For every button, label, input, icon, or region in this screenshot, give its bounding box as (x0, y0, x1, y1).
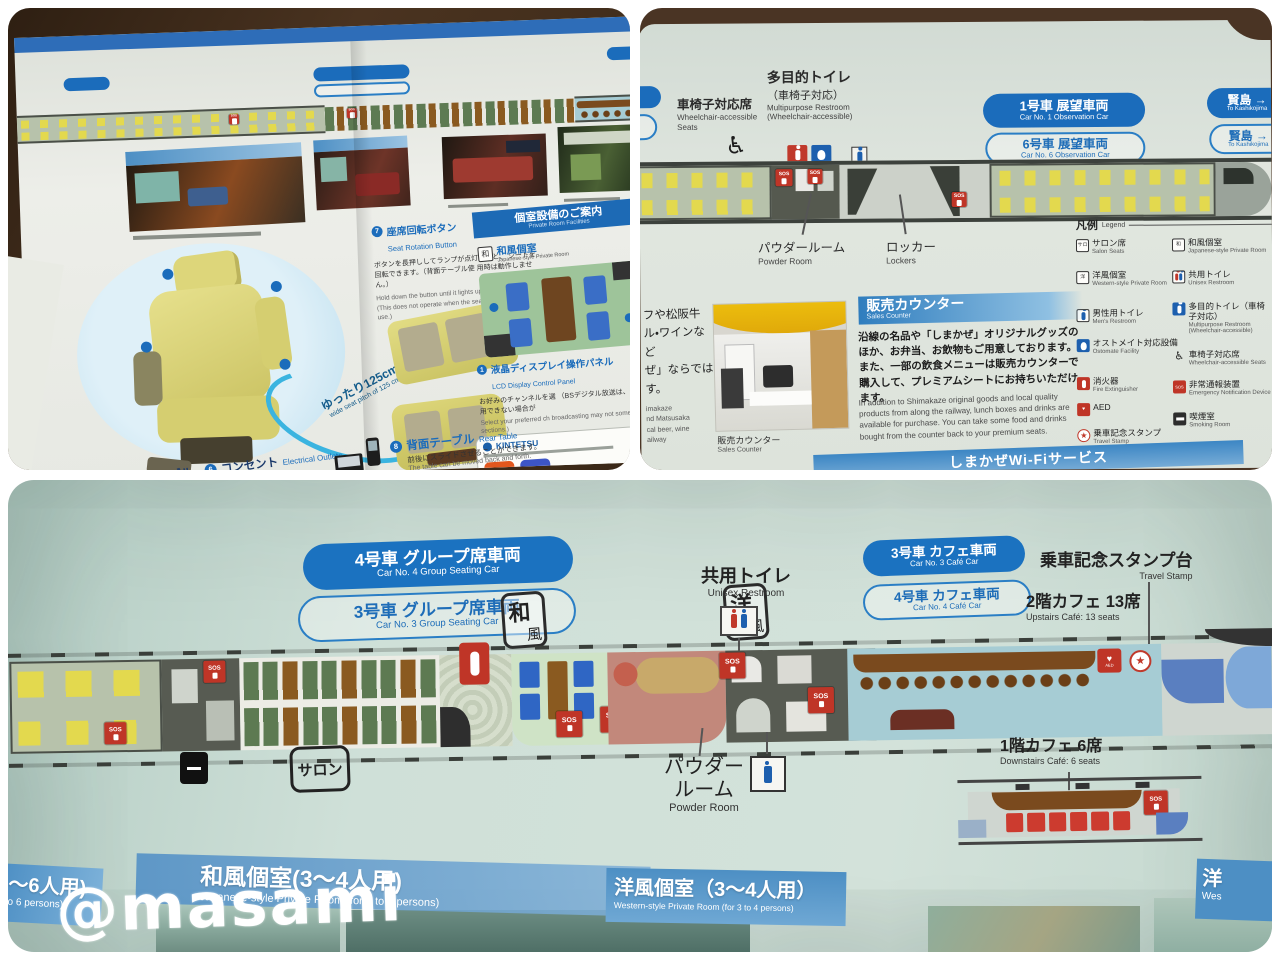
banner-right-partial: 洋 Wes (1195, 859, 1272, 922)
phone-icon (365, 437, 380, 466)
multipurpose-restroom-label: 多目的トイレ （車椅子対応） Multipurpose Restroom (Wh… (767, 67, 853, 122)
downstairs-cafe-label: 1階カフェ 6席 Downstairs Café: 6 seats (1000, 732, 1102, 766)
mini-pill-1 (63, 77, 109, 92)
rear-table-en: Rear Table (478, 431, 517, 444)
salon-label-box: サロン (289, 745, 351, 793)
japanese-room-icon: 和 (1172, 238, 1185, 251)
body-line: broadcasting may not (551, 410, 613, 421)
legend-item-wheelchair-seats: ♿ 車椅子対応席Wheelchair-accessible Seats (1173, 350, 1266, 367)
car4-cafe-pill: 4号車 カフェ車両 Car No. 4 Café Car (862, 579, 1031, 621)
legend-item-western-room: 洋 洋風個室Western-style Private Room (1076, 271, 1167, 288)
bottom-photo-3 (928, 906, 1140, 952)
multipurpose-restroom-icon (1172, 302, 1185, 315)
mini-pill-4 (607, 46, 630, 61)
car3-cafe-pill: 3号車 カフェ車両 Car No. 3 Café Car (862, 535, 1025, 577)
car4-group-pill: 4号車 グループ席車両 Car No. 4 Group Seating Car (302, 535, 573, 590)
downstairs-seats (1006, 811, 1130, 832)
car1-pill: 1号車 展望車両 Car No. 1 Observation Car (983, 93, 1145, 128)
interior-photo-caption-line (133, 232, 261, 240)
smoking-room-icon (1173, 412, 1186, 425)
kashikojima-pill-2: 賢島 → To Kashikojima (1209, 124, 1272, 155)
group-seats-left (9, 660, 162, 754)
circled-number: 7 (371, 226, 383, 238)
legend-item-mens-restroom: 男性用トイレMen's Restroom (1076, 309, 1143, 326)
legend: 凡例 Legend サロ サロン席Salon Seats 洋 洋風個室Weste… (1076, 216, 1272, 457)
downstairs-cafe-inset: SOS (957, 776, 1202, 850)
caption-line-2 (448, 203, 508, 208)
lcd-panel-block: 1 液晶ディスプレイ操作パネル LCD Display Control Pane… (476, 351, 630, 437)
premium-seat-base (157, 395, 280, 443)
interior-photo-cafe-downstairs (442, 134, 548, 200)
unisex-restroom-label: 共用トイレ Unisex Restroom (676, 562, 816, 599)
smoking-room-icon (180, 752, 208, 784)
circled-number: 1 (477, 364, 488, 375)
mini-plan-left-seats (17, 105, 326, 144)
wheelchair-seats-label: 車椅子対応席 Wheelchair-accessible Seats (677, 93, 777, 132)
seat-rotation-title-en: Seat Rotation Button (388, 240, 458, 254)
outlets-jp: コンセント (220, 457, 279, 470)
legend-title-rule (1129, 223, 1272, 225)
left-seating-section (640, 165, 772, 220)
legend-item-emergency: SOS 非常通報装置Emergency Notification Device (1173, 380, 1271, 397)
mini-plan-cafe (574, 94, 630, 123)
brochure-page: SOS SOS (14, 16, 630, 470)
premium-seat-back (147, 282, 273, 411)
emergency-notification-icon: SOS (1173, 380, 1186, 393)
premium-seat-armrest (133, 351, 163, 406)
sales-counter-caption: 販売カウンター Sales Counter (717, 433, 780, 453)
driver-cab-nose (1215, 162, 1271, 216)
lcd-title-en: LCD Display Control Panel (492, 378, 576, 391)
stairs-zone (839, 164, 989, 219)
salon-seating-area (239, 655, 440, 750)
salon-seats-icon: サロ (1076, 239, 1089, 252)
powder-room-label: パウダールーム Powder Room (758, 237, 845, 267)
travel-stamp-badge: ★ (1129, 650, 1151, 672)
circled-number: 8 (389, 440, 402, 453)
observation-car-floorplan: SOS SOS SOS SOS (640, 158, 1272, 224)
right-seating-section (989, 162, 1215, 218)
powder-pointer-2 (766, 732, 768, 754)
sales-left-fragment: フや松阪牛 ル・ワインなど ぜ」ならでは す。 imakaze nd Matsu… (643, 305, 718, 447)
wheelchair-seats-icon: ♿ (1173, 350, 1186, 363)
upstairs-cafe-label: 2階カフェ 13席 Upstairs Café: 13 seats (1026, 588, 1141, 622)
clipped-pill (640, 86, 661, 108)
body-line: （BSデジタル放送は、一 (557, 388, 630, 401)
legend-item-unisex-restroom: 共用トイレUnisex Restroom (1172, 270, 1234, 287)
interior-photo-japanese-room (125, 142, 305, 232)
sales-body-en: In addition to Shimakaze original goods … (859, 390, 1088, 442)
aed-box: ♥ AED (1097, 648, 1121, 672)
travel-stamp-label: 乗車記念スタンプ台 Travel Stamp (1040, 546, 1193, 581)
legend-item-japanese-room: 和 和風個室Japanese-style Private Room (1172, 238, 1266, 255)
downstairs-canopy (992, 790, 1142, 811)
unisex-restroom-icon (1172, 270, 1185, 283)
legend-item-salon: サロ サロン席Salon Seats (1076, 239, 1126, 256)
legend-item-ostomate: オストメイト対応設備Ostomate Facility (1077, 338, 1178, 355)
cafe-counter (853, 651, 1095, 673)
kashikojima-pill: 賢島 → To Kashikojima (1207, 88, 1272, 119)
watermark: @masami (55, 862, 404, 947)
cafe-bench (890, 709, 954, 730)
lockers-label: ロッカー Lockers (886, 236, 936, 265)
sales-counter-photo (713, 302, 848, 431)
japanese-room-diagram (478, 260, 630, 358)
unisex-restroom-icon (720, 606, 758, 636)
legend-item-smoking-room: 喫煙室Smoking Room (1173, 412, 1230, 429)
wifi-banner: しまかぜWi-Fiサービス (813, 440, 1244, 470)
legend-title-en: Legend (1102, 221, 1125, 228)
legend-title-jp: 凡例 (1076, 217, 1098, 233)
circled-number: 6 (204, 463, 217, 470)
stairs-right (1161, 642, 1272, 736)
japanese-room-icon: 和 (477, 246, 493, 262)
page-paper: 車椅子対応席 Wheelchair-accessible Seats ♿ 多目的… (640, 20, 1272, 470)
western-room-icon: 洋 (1076, 271, 1089, 284)
cafe-stools (858, 671, 1092, 693)
sales-counter-heading: 販売カウンター Sales Counter (858, 291, 1083, 324)
vestibule-left (161, 658, 240, 751)
wheelchair-icon: ♿ (725, 131, 747, 160)
photo-observation-car-page: 車椅子対応席 Wheelchair-accessible Seats ♿ 多目的… (640, 8, 1272, 470)
photo-group-cafe-car-page: 4号車 グループ席車両 Car No. 4 Group Seating Car … (8, 480, 1272, 952)
interior-photo-cafe-upstairs (557, 124, 630, 193)
inarm-jp: インアームテーブル (91, 467, 193, 470)
banner-western-room: 洋風個室（3～4人用） Western-style Private Room (… (606, 868, 847, 926)
powder-room-label: パウダー ルーム Powder Room (664, 756, 744, 814)
clipped-pill (640, 114, 657, 140)
laptop-icon (334, 453, 364, 470)
page-top-stripe (14, 16, 630, 53)
photo-brochure-overview: SOS SOS (8, 8, 630, 470)
seat-rotation-title-jp: 座席回転ボタン (386, 219, 457, 239)
western-private-room (607, 651, 726, 745)
legend-item-multipurpose-restroom: 多目的トイレ（車椅子対応）Multipurpose Restroom (Whee… (1172, 302, 1272, 335)
powder-room-icon (750, 756, 786, 792)
body-line: お好みのチャンネルを選 (479, 394, 556, 406)
cafe-floor: ♥ AED ★ (847, 644, 1162, 741)
fire-extinguisher-icon (459, 642, 490, 684)
